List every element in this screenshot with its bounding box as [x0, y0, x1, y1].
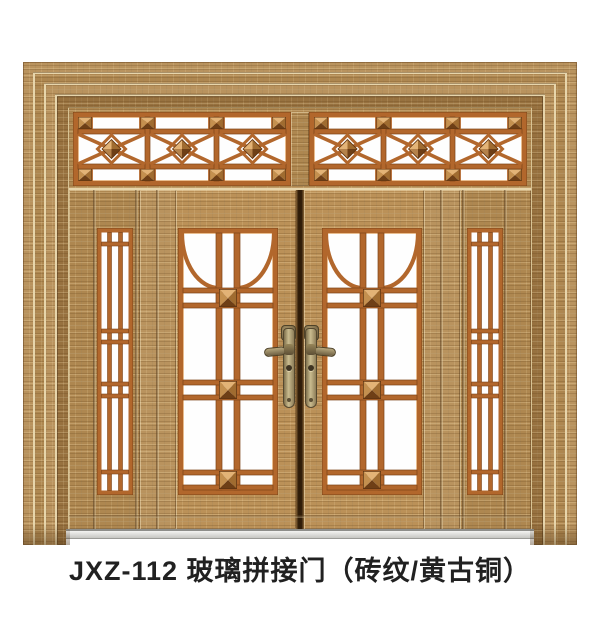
sidelight-lattice-left — [97, 228, 133, 495]
panel-groove — [504, 190, 507, 529]
sidelight-lattice-right — [467, 228, 503, 495]
panel-groove — [93, 190, 96, 529]
frame-foot-shadow-right — [530, 524, 577, 545]
panel-groove — [440, 190, 443, 529]
plate-screw — [309, 398, 313, 402]
door-glass-lattice-right — [322, 228, 422, 495]
transom-window-left — [73, 112, 291, 186]
keyhole — [286, 365, 292, 371]
floor-strip — [66, 539, 534, 547]
panel-groove — [462, 190, 465, 529]
fixed-panel-right — [424, 190, 460, 529]
handle-hub — [284, 344, 294, 355]
plate-screw — [287, 398, 291, 402]
product-caption: JXZ-112 玻璃拼接门（砖纹/黄古铜） — [0, 554, 600, 588]
panel-groove — [156, 190, 159, 529]
panel-groove — [135, 190, 138, 529]
bottom-rail-groove — [69, 515, 531, 518]
transom-mullion — [291, 112, 309, 186]
transom-window-right — [309, 112, 527, 186]
threshold-sill — [66, 529, 534, 539]
handle-hub — [306, 344, 316, 355]
meeting-stile-gap — [296, 190, 304, 529]
product-photo: JXZ-112 玻璃拼接门（砖纹/黄古铜） — [0, 0, 600, 628]
keyhole — [308, 365, 314, 371]
fixed-panel-left — [140, 190, 176, 529]
frame-foot-shadow-left — [23, 524, 70, 545]
door-glass-lattice-left — [178, 228, 278, 495]
